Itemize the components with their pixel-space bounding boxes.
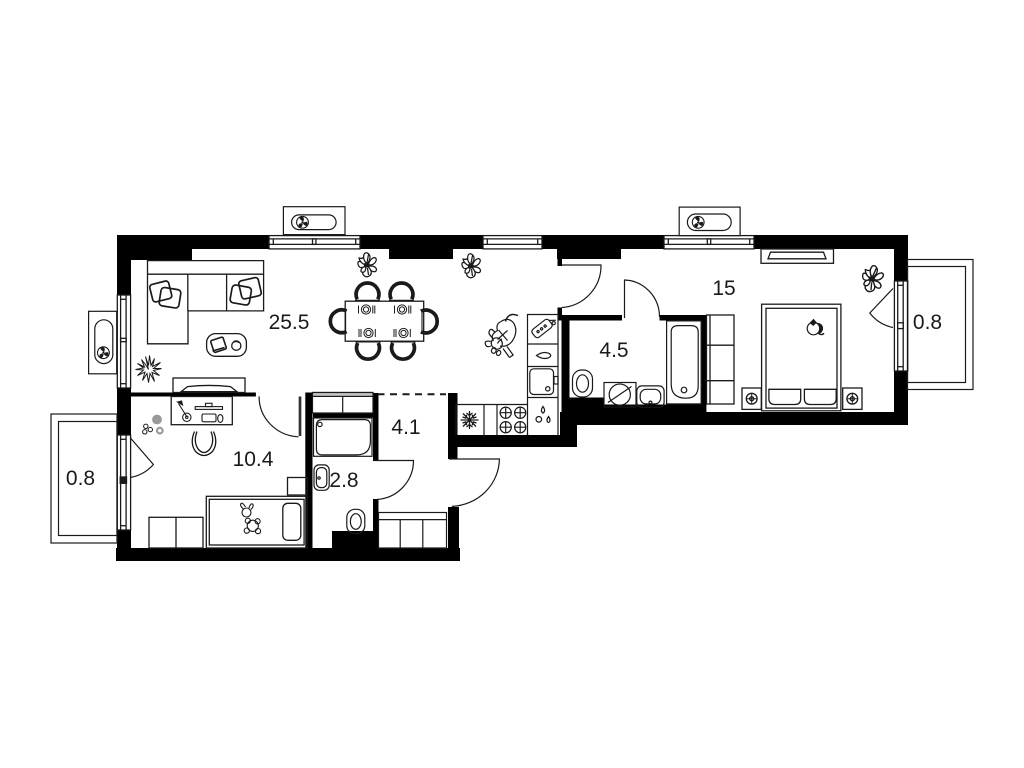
svg-text:4.5: 4.5	[599, 339, 628, 362]
svg-text:2.8: 2.8	[329, 469, 358, 492]
svg-text:0.8: 0.8	[66, 467, 95, 490]
svg-text:0.8: 0.8	[913, 311, 942, 334]
svg-text:10.4: 10.4	[233, 448, 274, 471]
svg-text:15: 15	[712, 277, 735, 300]
svg-text:4.1: 4.1	[391, 416, 420, 439]
svg-text:25.5: 25.5	[269, 311, 310, 334]
